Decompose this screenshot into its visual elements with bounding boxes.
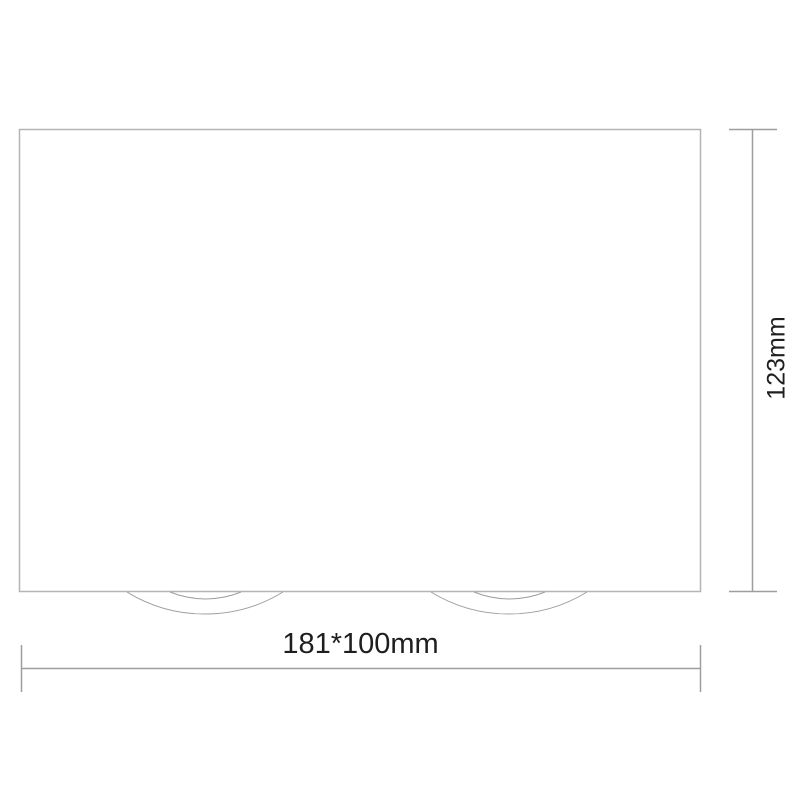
right-lamp-outer-arc bbox=[431, 592, 587, 614]
drawing-linework bbox=[0, 0, 800, 800]
dimension-drawing: 181*100mm 123mm bbox=[0, 0, 800, 800]
right-lamp-inner-arc bbox=[474, 592, 545, 599]
left-lamp-inner-arc bbox=[170, 592, 241, 599]
width-dimension-label: 181*100mm bbox=[21, 630, 700, 659]
height-dimension-label: 123mm bbox=[765, 316, 790, 399]
fixture-body-outline bbox=[20, 130, 701, 592]
left-lamp-outer-arc bbox=[127, 592, 283, 614]
